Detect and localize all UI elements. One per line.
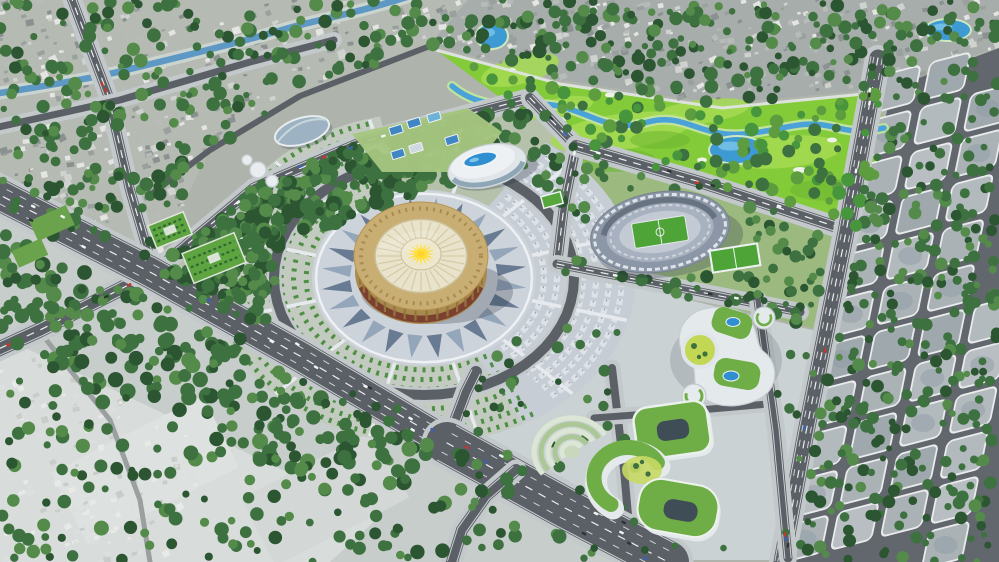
courtyard-tree bbox=[697, 355, 701, 359]
tree bbox=[941, 169, 948, 176]
lawn-tree bbox=[640, 460, 644, 464]
tree bbox=[190, 22, 199, 31]
tree bbox=[49, 384, 62, 397]
tree bbox=[810, 143, 821, 154]
tree bbox=[654, 101, 665, 112]
tree bbox=[870, 234, 880, 244]
tree bbox=[61, 98, 72, 109]
tree bbox=[809, 445, 821, 457]
tree bbox=[199, 295, 208, 304]
tree bbox=[247, 393, 258, 404]
tree bbox=[358, 36, 370, 48]
tree bbox=[607, 3, 620, 16]
tree bbox=[11, 302, 22, 313]
tree bbox=[580, 555, 587, 562]
tree bbox=[87, 335, 97, 345]
tree bbox=[753, 290, 762, 299]
tree bbox=[89, 185, 95, 191]
building-roof bbox=[988, 47, 991, 50]
tree bbox=[600, 59, 614, 73]
tree bbox=[416, 15, 428, 27]
tree bbox=[269, 397, 280, 408]
tree bbox=[783, 301, 789, 307]
tree bbox=[911, 532, 923, 544]
tree bbox=[581, 214, 591, 224]
tree bbox=[889, 126, 899, 136]
tree bbox=[353, 542, 366, 555]
tree bbox=[835, 333, 844, 342]
tree bbox=[952, 133, 964, 145]
building-roof bbox=[74, 393, 79, 398]
tree bbox=[31, 275, 41, 285]
tree bbox=[935, 258, 948, 271]
tree bbox=[950, 258, 961, 269]
tree bbox=[984, 542, 991, 549]
tree bbox=[963, 150, 974, 161]
tree bbox=[671, 287, 682, 298]
tree bbox=[975, 395, 984, 404]
tree bbox=[724, 299, 732, 307]
tree bbox=[227, 407, 235, 415]
tree bbox=[589, 88, 602, 101]
tree bbox=[90, 13, 101, 24]
tree bbox=[44, 441, 51, 448]
tree bbox=[241, 222, 252, 233]
tree bbox=[836, 354, 843, 361]
tree bbox=[809, 273, 817, 281]
tree bbox=[95, 395, 110, 410]
tree bbox=[156, 142, 165, 151]
tree bbox=[772, 244, 783, 255]
tree bbox=[566, 61, 577, 72]
tree bbox=[723, 60, 732, 69]
tree bbox=[636, 84, 648, 96]
tree bbox=[201, 496, 208, 503]
tree bbox=[331, 0, 343, 12]
tree bbox=[978, 234, 987, 243]
tree bbox=[952, 172, 959, 179]
tree bbox=[10, 554, 18, 562]
tree bbox=[321, 431, 334, 444]
tree bbox=[631, 70, 644, 83]
tree bbox=[698, 45, 705, 52]
tree bbox=[269, 531, 283, 545]
tree bbox=[380, 453, 391, 464]
tree bbox=[32, 297, 43, 308]
tree bbox=[888, 326, 895, 333]
tree bbox=[236, 212, 245, 221]
tree bbox=[810, 238, 818, 246]
tree bbox=[308, 473, 316, 481]
tree bbox=[905, 405, 917, 417]
tree bbox=[295, 462, 308, 475]
tree bbox=[78, 199, 87, 208]
building-roof bbox=[812, 34, 816, 38]
tree bbox=[342, 484, 354, 496]
tree bbox=[970, 297, 981, 308]
tree bbox=[95, 202, 104, 211]
tree bbox=[383, 476, 397, 490]
tree bbox=[153, 2, 163, 12]
tree bbox=[290, 189, 302, 201]
tree bbox=[139, 468, 152, 481]
tree bbox=[618, 135, 625, 142]
tree bbox=[346, 8, 355, 17]
tree bbox=[948, 64, 960, 76]
tree bbox=[370, 510, 382, 522]
tree bbox=[56, 74, 63, 81]
tree bbox=[784, 403, 794, 413]
tree bbox=[561, 268, 570, 277]
tree bbox=[261, 110, 267, 116]
tree bbox=[960, 445, 967, 452]
tree bbox=[30, 33, 37, 40]
tree bbox=[773, 86, 780, 93]
tree bbox=[874, 435, 884, 445]
tree bbox=[922, 276, 933, 287]
tree bbox=[172, 403, 187, 418]
tree bbox=[710, 133, 723, 146]
tree bbox=[912, 201, 921, 210]
building-roof bbox=[347, 41, 353, 46]
tree bbox=[67, 550, 78, 561]
tree bbox=[614, 92, 623, 101]
tree bbox=[326, 468, 338, 480]
tree bbox=[169, 512, 183, 526]
tree bbox=[152, 302, 163, 313]
tree bbox=[852, 358, 865, 371]
tree bbox=[606, 97, 614, 105]
tree bbox=[457, 457, 467, 467]
tree bbox=[184, 446, 199, 461]
tree bbox=[153, 318, 168, 333]
tree bbox=[739, 62, 748, 71]
tree bbox=[244, 313, 256, 325]
tree bbox=[710, 155, 723, 168]
building-roof bbox=[243, 74, 247, 76]
tree bbox=[404, 554, 412, 562]
tree bbox=[354, 60, 363, 69]
tree bbox=[893, 93, 900, 100]
tree bbox=[800, 284, 808, 292]
building-roof bbox=[59, 50, 64, 53]
tree bbox=[151, 169, 165, 183]
tree bbox=[814, 431, 824, 441]
tree bbox=[297, 223, 310, 236]
tree bbox=[277, 188, 285, 196]
tree bbox=[678, 35, 685, 42]
tree bbox=[186, 92, 192, 98]
tree bbox=[855, 260, 867, 272]
tree bbox=[310, 173, 322, 185]
tree bbox=[661, 157, 669, 165]
tree bbox=[868, 427, 876, 435]
tree bbox=[904, 238, 912, 246]
block-shading bbox=[911, 414, 935, 432]
tree bbox=[770, 208, 777, 215]
tree bbox=[887, 290, 895, 298]
tree bbox=[351, 166, 365, 180]
tree bbox=[287, 420, 296, 429]
tree bbox=[9, 203, 20, 214]
tree bbox=[40, 153, 50, 163]
tree bbox=[420, 438, 434, 452]
tree bbox=[140, 177, 154, 191]
tree bbox=[957, 413, 969, 425]
tree bbox=[539, 110, 551, 122]
tree bbox=[672, 57, 679, 64]
tree bbox=[842, 76, 851, 85]
tree bbox=[111, 118, 125, 132]
building-roof bbox=[94, 536, 100, 540]
tree bbox=[699, 14, 711, 26]
building-roof bbox=[66, 169, 72, 174]
tree bbox=[206, 51, 214, 59]
tree bbox=[239, 199, 252, 212]
tree bbox=[65, 307, 75, 317]
tree bbox=[743, 91, 756, 104]
tree bbox=[601, 43, 611, 53]
tree bbox=[861, 129, 869, 137]
tree bbox=[253, 295, 265, 307]
tree bbox=[325, 71, 333, 79]
tree bbox=[968, 272, 977, 281]
tree bbox=[804, 166, 814, 176]
tree bbox=[182, 491, 189, 498]
building-roof bbox=[23, 139, 30, 144]
tree bbox=[209, 359, 218, 368]
tree bbox=[83, 482, 94, 493]
tree bbox=[694, 285, 701, 292]
tree bbox=[590, 544, 598, 552]
tree bbox=[223, 131, 237, 145]
building-roof bbox=[31, 358, 35, 362]
tree bbox=[332, 63, 344, 75]
tree bbox=[756, 178, 770, 192]
tree bbox=[306, 187, 316, 197]
tree bbox=[385, 35, 396, 46]
tree bbox=[744, 72, 750, 78]
tree bbox=[552, 529, 566, 543]
tree bbox=[153, 182, 162, 191]
tree bbox=[960, 93, 967, 100]
tree bbox=[244, 10, 255, 21]
tree bbox=[838, 449, 846, 457]
tree bbox=[393, 524, 403, 534]
tree bbox=[796, 456, 802, 462]
tree bbox=[571, 255, 581, 265]
tree bbox=[279, 431, 292, 444]
tree bbox=[545, 81, 559, 95]
tree bbox=[641, 546, 649, 554]
tree bbox=[82, 324, 91, 333]
tree bbox=[970, 456, 978, 464]
lawn-tree bbox=[645, 471, 650, 476]
tree bbox=[955, 512, 968, 525]
tree bbox=[235, 37, 246, 48]
tree bbox=[887, 299, 898, 310]
tree bbox=[978, 454, 990, 466]
tree bbox=[339, 398, 347, 406]
tree bbox=[154, 99, 166, 111]
tree bbox=[844, 301, 852, 309]
tree bbox=[256, 391, 268, 403]
tree bbox=[890, 423, 901, 434]
building-roof bbox=[553, 0, 560, 4]
tree bbox=[3, 3, 11, 11]
tree bbox=[3, 524, 14, 535]
tree bbox=[979, 368, 987, 376]
tree bbox=[817, 106, 827, 116]
tree bbox=[975, 512, 985, 522]
tree bbox=[263, 77, 271, 85]
tree bbox=[915, 187, 922, 194]
building-roof bbox=[54, 480, 61, 487]
lawn-tree bbox=[633, 463, 639, 469]
tree bbox=[892, 361, 904, 373]
tree bbox=[912, 82, 919, 89]
tree bbox=[790, 250, 802, 262]
courtyard-tree bbox=[702, 351, 707, 356]
tree bbox=[502, 109, 515, 122]
tree bbox=[139, 250, 150, 261]
tree bbox=[209, 432, 224, 447]
tree bbox=[929, 486, 941, 498]
tree bbox=[722, 163, 730, 171]
tree bbox=[290, 392, 304, 406]
tree bbox=[554, 461, 566, 473]
tree bbox=[23, 307, 32, 316]
tree bbox=[99, 230, 111, 242]
tree bbox=[557, 86, 570, 99]
building-roof bbox=[449, 10, 457, 17]
tree bbox=[50, 274, 61, 285]
tree bbox=[953, 276, 962, 285]
building-roof bbox=[145, 145, 150, 150]
tree bbox=[555, 378, 562, 385]
tree bbox=[860, 401, 868, 409]
tree bbox=[29, 135, 38, 144]
tree bbox=[770, 115, 784, 129]
tree bbox=[841, 207, 854, 220]
building-roof bbox=[65, 155, 71, 160]
tree bbox=[138, 203, 147, 212]
tree bbox=[241, 22, 254, 35]
tree bbox=[705, 80, 719, 94]
tree bbox=[612, 15, 620, 23]
tree bbox=[963, 256, 970, 263]
tree bbox=[569, 142, 578, 151]
tree bbox=[662, 282, 669, 289]
tree bbox=[542, 180, 554, 192]
tree bbox=[808, 187, 820, 199]
tree bbox=[950, 307, 960, 317]
tree bbox=[932, 32, 942, 42]
tree bbox=[403, 432, 413, 442]
tree bbox=[581, 166, 589, 174]
tree bbox=[202, 387, 210, 395]
tree bbox=[362, 61, 370, 69]
tree bbox=[972, 421, 980, 429]
building-roof bbox=[39, 57, 42, 60]
tree bbox=[154, 67, 162, 75]
tree bbox=[90, 101, 102, 113]
tree bbox=[907, 277, 914, 284]
tree bbox=[986, 225, 997, 236]
tree bbox=[961, 227, 971, 237]
building-roof bbox=[590, 55, 598, 63]
tree bbox=[784, 196, 796, 208]
tree bbox=[768, 264, 778, 274]
tree bbox=[976, 521, 986, 531]
tree bbox=[10, 296, 18, 304]
tree bbox=[155, 347, 164, 356]
courtyard-tree bbox=[691, 343, 697, 349]
tree bbox=[874, 17, 886, 29]
tree bbox=[318, 483, 330, 495]
tree bbox=[603, 421, 613, 431]
tree bbox=[916, 162, 924, 170]
tree bbox=[266, 239, 276, 249]
tree bbox=[979, 358, 987, 366]
tree bbox=[134, 54, 148, 68]
tree bbox=[233, 369, 246, 382]
tree bbox=[321, 457, 332, 468]
tree bbox=[967, 164, 980, 177]
tree bbox=[156, 42, 165, 51]
tree bbox=[713, 115, 723, 125]
tree bbox=[967, 71, 978, 82]
tree bbox=[816, 268, 825, 277]
tree bbox=[657, 58, 666, 67]
tree bbox=[586, 14, 598, 26]
tree bbox=[139, 294, 148, 303]
tree bbox=[396, 551, 405, 560]
tree bbox=[124, 521, 137, 534]
tree bbox=[517, 465, 528, 476]
tree bbox=[281, 479, 291, 489]
tree bbox=[907, 56, 918, 67]
tree bbox=[540, 144, 551, 155]
tree bbox=[193, 42, 202, 51]
tree bbox=[494, 17, 504, 27]
tree bbox=[689, 41, 696, 48]
tree bbox=[850, 347, 859, 356]
tree bbox=[45, 301, 55, 311]
tree bbox=[810, 370, 817, 377]
tree bbox=[102, 7, 114, 19]
tree bbox=[84, 169, 93, 178]
tree bbox=[102, 47, 109, 54]
tree bbox=[185, 358, 200, 373]
tree bbox=[803, 352, 810, 359]
tree bbox=[511, 336, 521, 346]
tree bbox=[106, 193, 116, 203]
tree bbox=[68, 77, 82, 91]
tree bbox=[934, 292, 942, 300]
tree bbox=[899, 189, 909, 199]
tree bbox=[951, 210, 962, 221]
tree bbox=[113, 285, 122, 294]
tree bbox=[329, 202, 339, 212]
tree bbox=[416, 180, 428, 192]
tree bbox=[186, 305, 193, 312]
tree bbox=[866, 320, 874, 328]
tree bbox=[614, 329, 621, 336]
tree bbox=[940, 93, 949, 102]
rendered-image bbox=[0, 0, 999, 562]
tree bbox=[403, 192, 411, 200]
